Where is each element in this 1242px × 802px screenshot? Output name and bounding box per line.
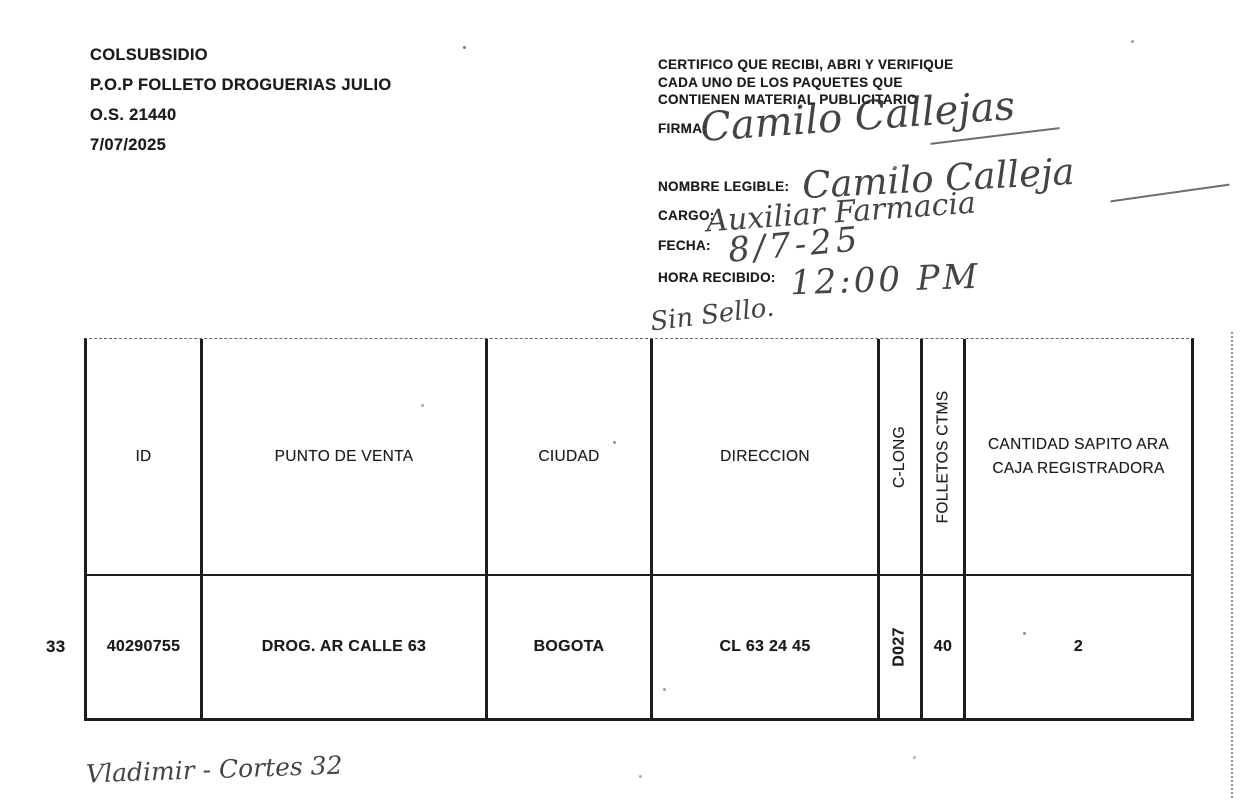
cell-id: 40290755: [87, 576, 203, 718]
cell-direccion: CL 63 24 45: [653, 576, 880, 718]
nombre-legible-label: NOMBRE LEGIBLE:: [658, 179, 789, 194]
scan-noise-specks: [463, 46, 466, 49]
cell-c-long: D027: [880, 576, 923, 718]
cell-punto-de-venta: DROG. AR CALLE 63: [203, 576, 488, 718]
cell-ciudad: BOGOTA: [488, 576, 653, 718]
doc-info-block: COLSUBSIDIO P.O.P FOLLETO DROGUERIAS JUL…: [90, 40, 391, 160]
certificate-line-2: CADA UNO DE LOS PAQUETES QUE: [658, 74, 953, 92]
hora-recibido-handwriting: 12:00 PM: [789, 260, 981, 301]
header-direccion: DIRECCION: [653, 339, 880, 576]
header-folletos-ctms: FOLLETOS CTMS: [923, 339, 966, 576]
header-c-long: C-LONG: [880, 339, 923, 576]
scanned-document-sheet: COLSUBSIDIO P.O.P FOLLETO DROGUERIAS JUL…: [0, 0, 1242, 802]
sin-sello-handwriting: Sin Sello.: [649, 295, 776, 336]
header-id: ID: [87, 339, 203, 576]
courier-handwritten-note: Vladimir - Cortes 32: [86, 753, 343, 787]
hora-recibido-label: HORA RECIBIDO:: [658, 270, 776, 285]
table-row-number: 33: [46, 637, 66, 657]
cell-cantidad: 2: [966, 576, 1191, 718]
scan-edge-artifact: [1231, 332, 1233, 798]
fecha-label: FECHA:: [658, 238, 711, 253]
distribution-table: ID PUNTO DE VENTA CIUDAD DIRECCION C-LON…: [84, 338, 1194, 721]
header-ciudad: CIUDAD: [488, 339, 653, 576]
header-punto-de-venta: PUNTO DE VENTA: [203, 339, 488, 576]
project-title: P.O.P FOLLETO DROGUERIAS JULIO: [90, 70, 391, 100]
header-cantidad-sapito: CANTIDAD SAPITO ARA CAJA REGISTRADORA: [966, 339, 1191, 576]
document-date: 7/07/2025: [90, 130, 391, 160]
certificate-line-1: CERTIFICO QUE RECIBI, ABRI Y VERIFIQUE: [658, 56, 953, 74]
company-name: COLSUBSIDIO: [90, 40, 391, 70]
order-number: O.S. 21440: [90, 100, 391, 130]
nombre-flourish: [1110, 184, 1229, 203]
cell-folletos-ctms: 40: [923, 576, 966, 718]
